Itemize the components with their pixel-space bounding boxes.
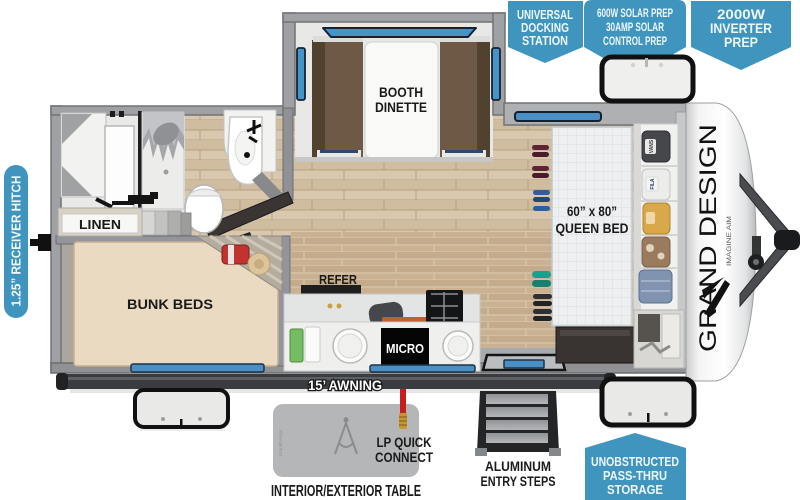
svg-text:STORAGE: STORAGE <box>607 482 663 497</box>
svg-text:UNOBSTRUCTED: UNOBSTRUCTED <box>591 454 679 469</box>
svg-text:VANS: VANS <box>649 139 655 153</box>
svg-text:GRAND DESIGN: GRAND DESIGN <box>695 124 722 352</box>
svg-text:2000W: 2000W <box>717 7 765 22</box>
svg-text:QUEEN BED: QUEEN BED <box>556 221 629 236</box>
svg-text:DINETTE: DINETTE <box>375 100 427 115</box>
svg-text:ALUMINUM: ALUMINUM <box>485 459 551 474</box>
svg-text:LINEN: LINEN <box>79 217 121 232</box>
svg-text:REFER: REFER <box>319 272 358 287</box>
svg-text:600W SOLAR PREP: 600W SOLAR PREP <box>597 8 673 20</box>
svg-text:STATION: STATION <box>522 33 568 48</box>
svg-text:INTERIOR/EXTERIOR TABLE: INTERIOR/EXTERIOR TABLE <box>271 483 421 500</box>
svg-text:FILA: FILA <box>650 178 656 189</box>
svg-text:BOOTH: BOOTH <box>379 85 423 100</box>
svg-text:INVERTER: INVERTER <box>710 21 772 36</box>
svg-text:PREP: PREP <box>724 35 758 50</box>
svg-text:60” x 80”: 60” x 80” <box>567 204 617 219</box>
svg-text:MICRO: MICRO <box>386 342 424 356</box>
svg-text:PASS-THRU: PASS-THRU <box>603 468 667 483</box>
svg-text:ENTRY STEPS: ENTRY STEPS <box>481 474 556 489</box>
svg-text:CONTROL PREP: CONTROL PREP <box>603 36 667 48</box>
svg-text:IMAGINE AIM: IMAGINE AIM <box>727 216 733 266</box>
svg-text:CONNECT: CONNECT <box>375 449 433 465</box>
svg-text:LP QUICK: LP QUICK <box>377 434 432 450</box>
svg-text:GrandDesign: GrandDesign <box>278 429 283 456</box>
svg-text:BUNK BEDS: BUNK BEDS <box>127 296 213 312</box>
svg-text:30AMP SOLAR: 30AMP SOLAR <box>606 22 664 34</box>
svg-text:15’ AWNING: 15’ AWNING <box>308 378 382 393</box>
svg-text:1.25” RECEIVER HITCH: 1.25” RECEIVER HITCH <box>9 176 24 307</box>
